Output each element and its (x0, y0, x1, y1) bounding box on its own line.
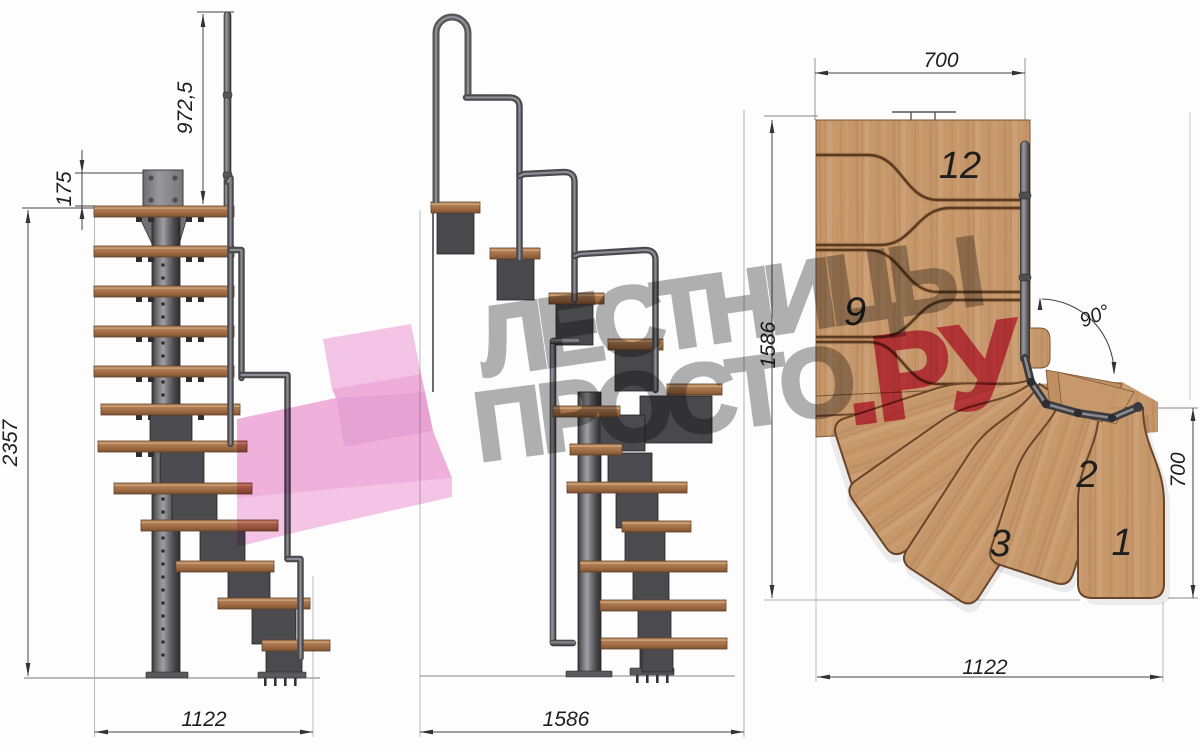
svg-text:2: 2 (1075, 454, 1097, 496)
svg-text:175: 175 (53, 171, 76, 206)
svg-text:1122: 1122 (962, 656, 1007, 679)
svg-text:12: 12 (939, 145, 981, 187)
svg-text:1: 1 (1111, 522, 1132, 564)
svg-text:700: 700 (923, 49, 958, 72)
svg-text:1586: 1586 (543, 708, 590, 731)
svg-text:3: 3 (989, 523, 1010, 565)
svg-text:2357: 2357 (0, 418, 22, 467)
svg-text:1122: 1122 (181, 708, 226, 731)
svg-text:972,5: 972,5 (174, 81, 197, 134)
svg-text:700: 700 (1167, 452, 1190, 487)
